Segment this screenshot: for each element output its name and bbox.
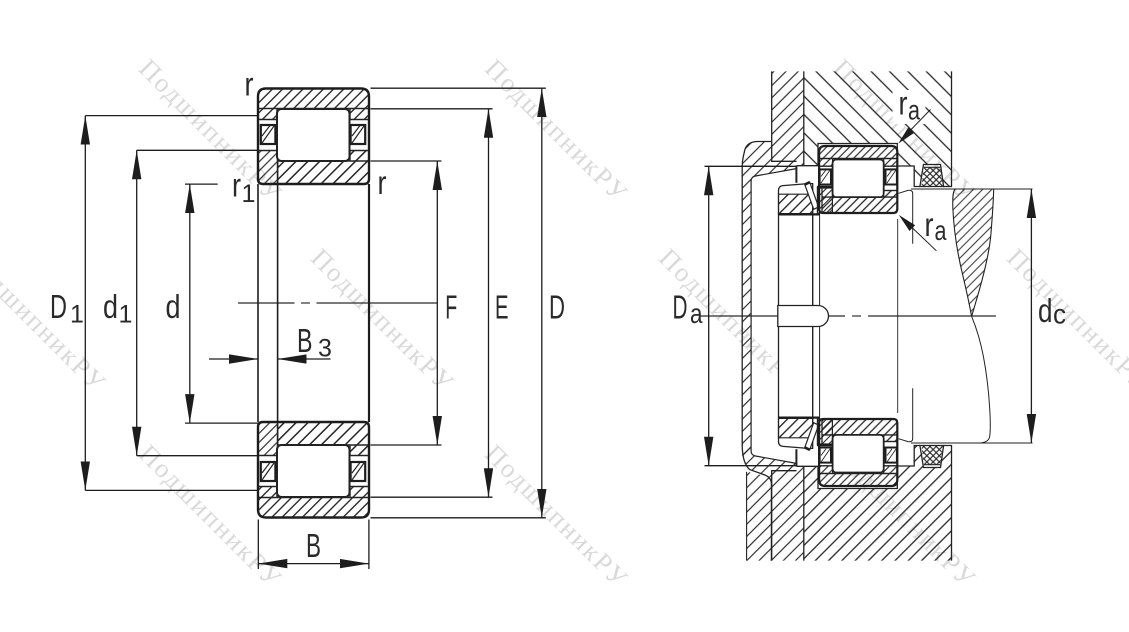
svg-text:D: D <box>50 288 67 325</box>
svg-text:r: r <box>232 167 241 204</box>
svg-text:c: c <box>1053 299 1066 330</box>
svg-text:d: d <box>103 288 118 325</box>
svg-text:1: 1 <box>70 301 84 329</box>
svg-text:r: r <box>899 84 908 121</box>
svg-text:d: d <box>166 288 181 325</box>
svg-text:r: r <box>378 164 387 201</box>
svg-text:a: a <box>908 95 920 126</box>
svg-text:a: a <box>935 215 947 246</box>
svg-text:r: r <box>245 66 254 103</box>
svg-text:r: r <box>925 206 934 243</box>
svg-text:F: F <box>445 289 457 326</box>
svg-text:D: D <box>549 289 565 326</box>
svg-text:D: D <box>673 289 688 326</box>
svg-text:d: d <box>1038 292 1053 329</box>
svg-text:a: a <box>690 298 703 329</box>
svg-text:B: B <box>306 527 321 564</box>
svg-text:1: 1 <box>242 180 256 208</box>
svg-text:E: E <box>495 289 509 326</box>
svg-text:1: 1 <box>119 301 133 329</box>
svg-text:3: 3 <box>318 335 332 363</box>
svg-text:B: B <box>297 322 313 359</box>
